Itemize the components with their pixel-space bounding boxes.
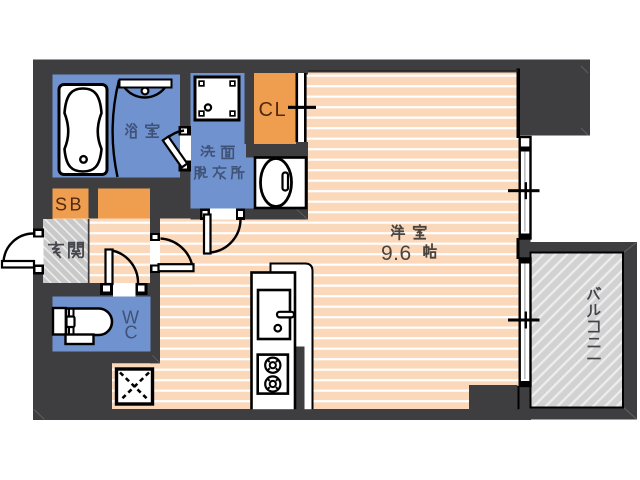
svg-text:C: C xyxy=(125,323,138,343)
svg-text:9.6: 9.6 xyxy=(381,242,412,265)
svg-text:CL: CL xyxy=(259,99,288,121)
svg-text:SB: SB xyxy=(55,195,84,215)
